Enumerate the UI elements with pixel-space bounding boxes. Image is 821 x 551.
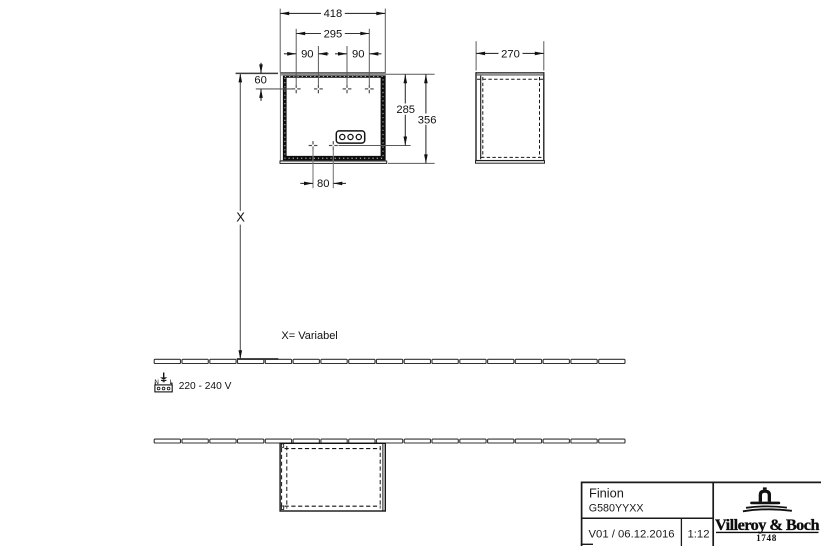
svg-text:270: 270	[501, 48, 520, 60]
svg-text:90: 90	[301, 49, 313, 61]
svg-text:356: 356	[418, 114, 437, 126]
svg-text:1:12: 1:12	[688, 528, 710, 540]
svg-text:418: 418	[324, 8, 343, 20]
svg-text:220 - 240 V: 220 - 240 V	[179, 381, 232, 392]
svg-text:Villeroy & Boch: Villeroy & Boch	[715, 515, 819, 534]
svg-text:295: 295	[324, 28, 343, 40]
svg-text:G580YYXX: G580YYXX	[589, 503, 644, 515]
svg-text:1748: 1748	[756, 533, 777, 543]
svg-text:60: 60	[254, 75, 266, 87]
svg-text:X= Variabel: X= Variabel	[281, 330, 337, 342]
svg-text:90: 90	[352, 49, 364, 61]
svg-text:X: X	[236, 210, 245, 225]
svg-text:80: 80	[317, 178, 329, 190]
svg-text:V01 / 06.12.2016: V01 / 06.12.2016	[589, 528, 675, 540]
svg-text:Finion: Finion	[589, 485, 624, 500]
svg-text:285: 285	[396, 104, 415, 116]
